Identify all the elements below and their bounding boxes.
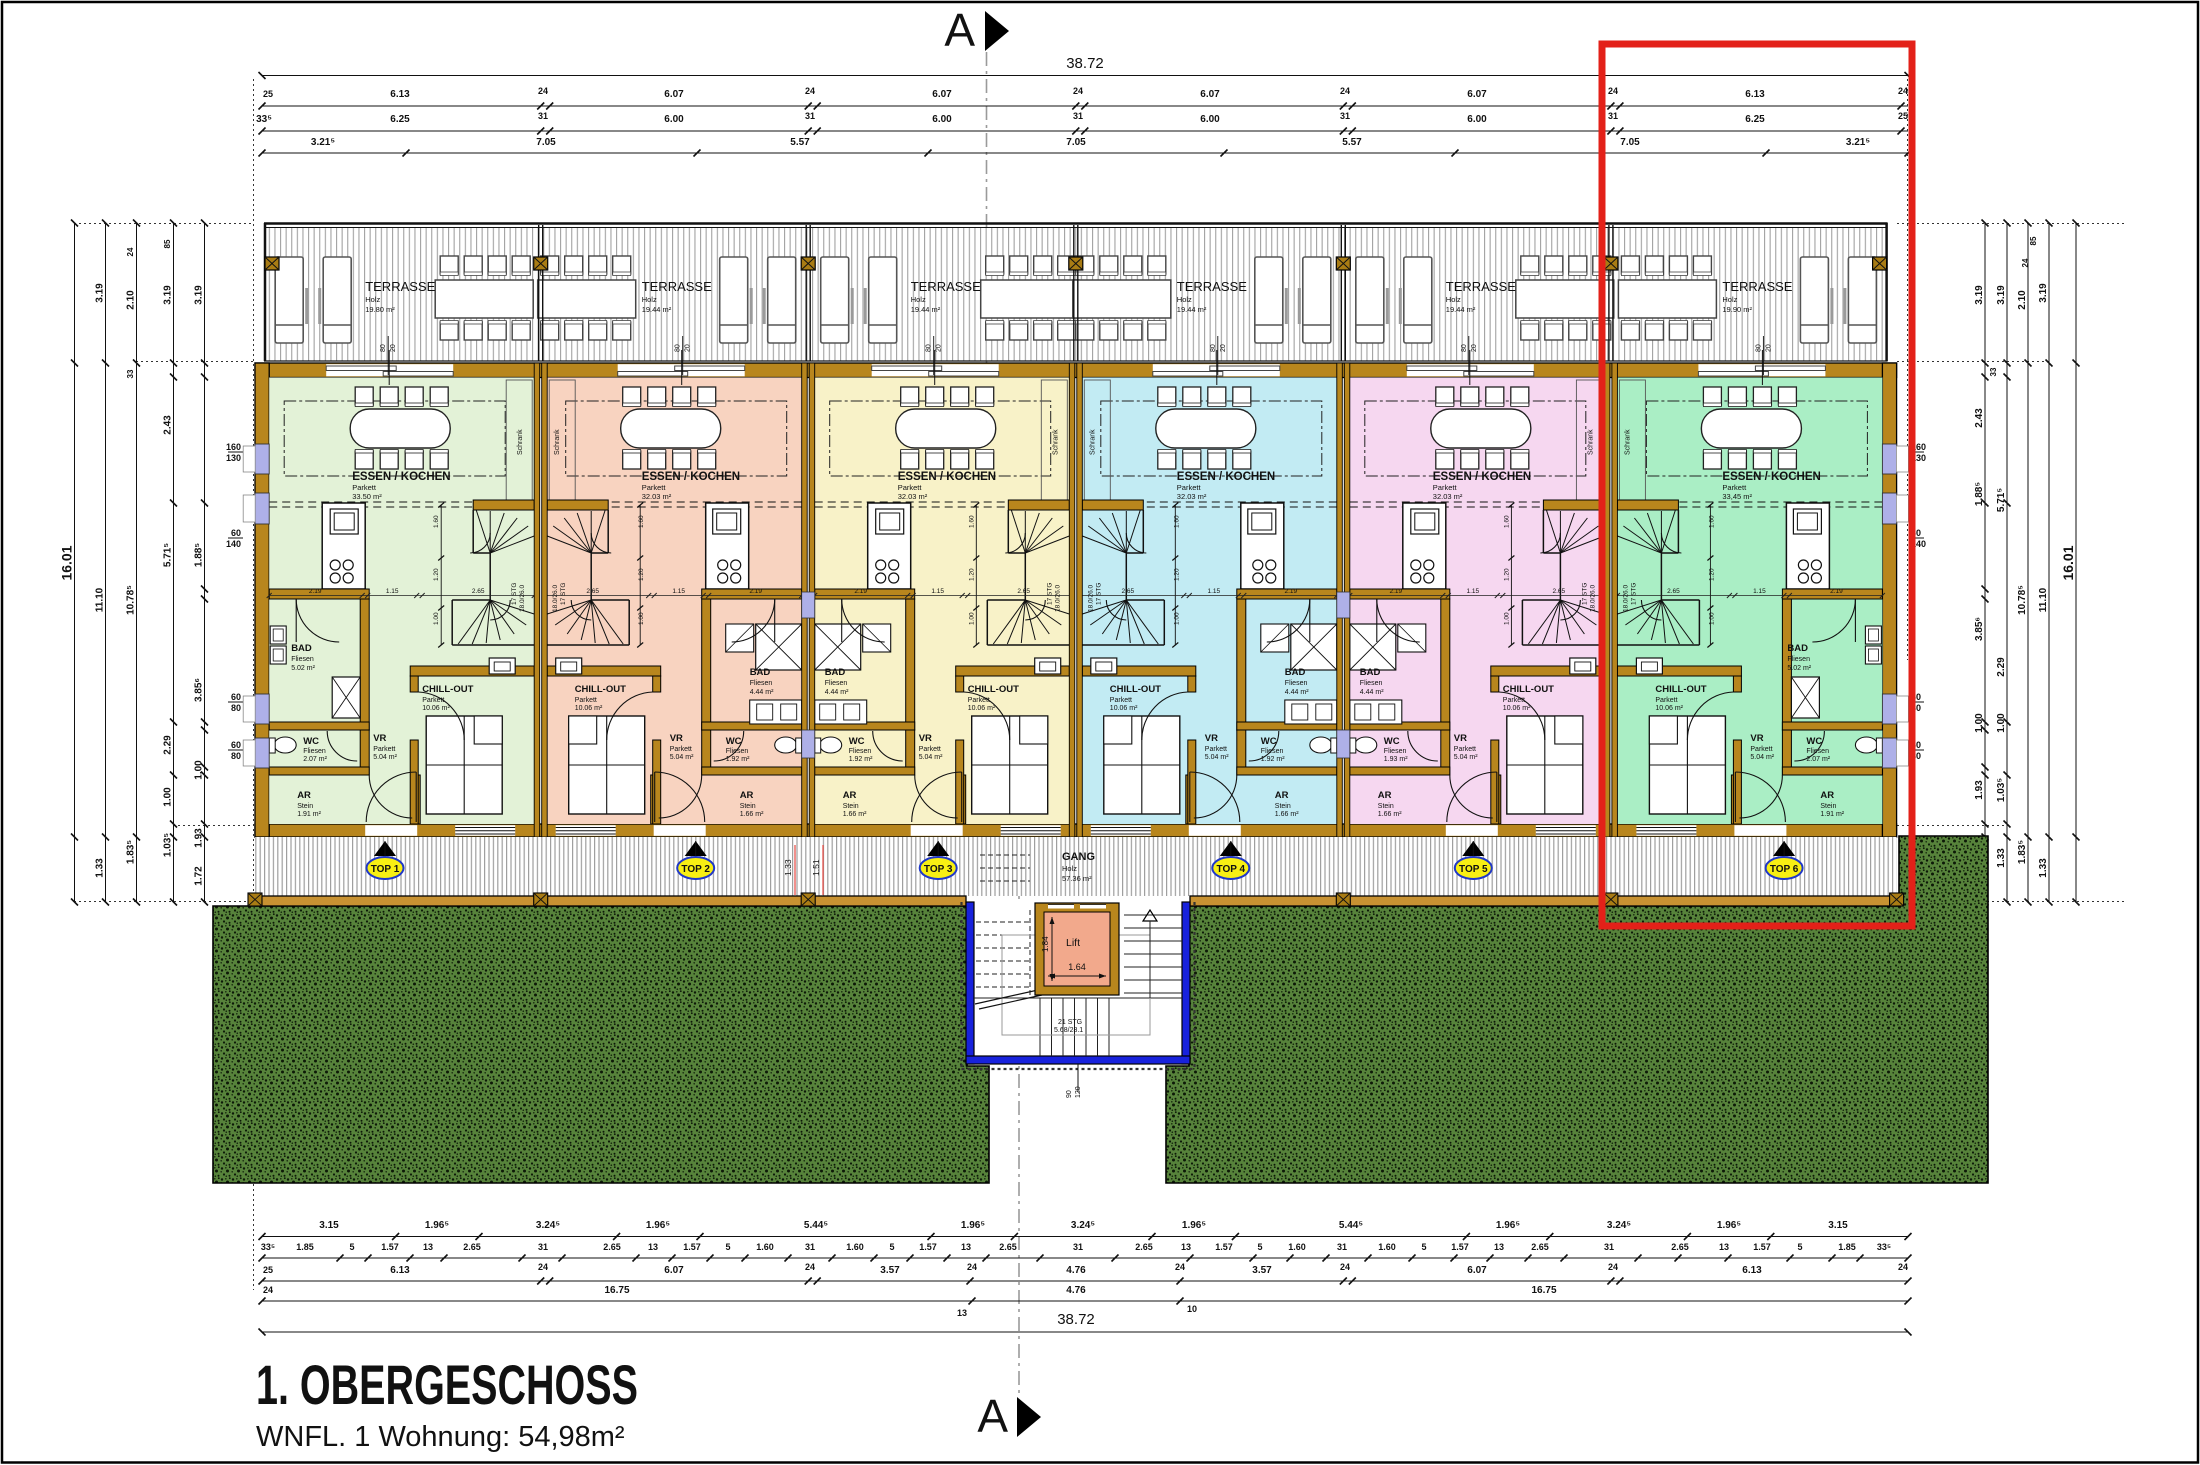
svg-text:5: 5 (1257, 1242, 1262, 1252)
svg-text:33⁵: 33⁵ (1877, 1242, 1891, 1252)
svg-text:ESSEN / KOCHEN: ESSEN / KOCHEN (352, 471, 450, 483)
svg-text:2.10: 2.10 (2017, 290, 2028, 310)
svg-text:1.60: 1.60 (1173, 515, 1180, 528)
svg-text:3.19: 3.19 (1996, 285, 2007, 305)
svg-text:4.76: 4.76 (1066, 1285, 1086, 1296)
svg-text:2.65: 2.65 (1135, 1242, 1153, 1252)
svg-text:80: 80 (675, 344, 682, 352)
svg-text:2.29: 2.29 (1996, 657, 2007, 677)
svg-text:2.29: 2.29 (163, 735, 174, 755)
svg-text:2.65: 2.65 (1017, 588, 1030, 595)
svg-text:3.57: 3.57 (880, 1265, 900, 1276)
svg-text:AR: AR (843, 790, 857, 801)
svg-text:38.72: 38.72 (1066, 55, 1104, 72)
svg-text:5: 5 (725, 1242, 730, 1252)
svg-text:Stein: Stein (297, 803, 313, 810)
svg-text:140: 140 (226, 539, 241, 549)
svg-text:TERRASSE: TERRASSE (1722, 279, 1792, 294)
svg-text:16.75: 16.75 (1531, 1285, 1556, 1296)
svg-text:6.07: 6.07 (932, 89, 952, 100)
svg-text:1.84: 1.84 (1041, 936, 1050, 952)
svg-text:Parkett: Parkett (373, 746, 395, 753)
svg-text:17 STG: 17 STG (1046, 583, 1053, 605)
svg-text:10: 10 (1187, 1304, 1197, 1314)
svg-text:Lift: Lift (1066, 937, 1080, 949)
svg-text:80: 80 (380, 344, 387, 352)
svg-text:TERRASSE: TERRASSE (911, 279, 981, 294)
svg-text:6.13: 6.13 (1742, 1265, 1762, 1276)
svg-text:4.76: 4.76 (1066, 1265, 1086, 1276)
svg-text:Parkett: Parkett (1503, 697, 1525, 704)
svg-text:WC: WC (726, 736, 742, 747)
svg-text:13: 13 (1181, 1242, 1191, 1252)
svg-text:24: 24 (1175, 1262, 1185, 1272)
svg-text:Holz: Holz (1177, 295, 1192, 304)
svg-text:16.75: 16.75 (604, 1285, 629, 1296)
svg-text:1.15: 1.15 (386, 588, 399, 595)
svg-text:32.03 m²: 32.03 m² (1433, 492, 1463, 501)
svg-text:20: 20 (1471, 344, 1478, 352)
svg-text:1.72: 1.72 (194, 866, 205, 886)
svg-text:TERRASSE: TERRASSE (1177, 279, 1247, 294)
svg-text:2.65: 2.65 (586, 588, 599, 595)
svg-text:AR: AR (1820, 790, 1834, 801)
svg-text:10.06 m²: 10.06 m² (1503, 705, 1531, 712)
svg-text:60: 60 (231, 528, 241, 538)
svg-text:1.15: 1.15 (1207, 588, 1220, 595)
svg-text:BAD: BAD (750, 667, 771, 678)
svg-text:24: 24 (263, 1285, 273, 1295)
svg-text:Parkett: Parkett (1110, 697, 1132, 704)
svg-text:6.13: 6.13 (1745, 89, 1765, 100)
svg-text:VR: VR (1205, 733, 1218, 744)
svg-text:19.44 m²: 19.44 m² (911, 305, 941, 314)
svg-text:2.65: 2.65 (1667, 588, 1680, 595)
svg-text:1.20: 1.20 (638, 568, 645, 581)
svg-text:ESSEN / KOCHEN: ESSEN / KOCHEN (642, 471, 740, 483)
svg-text:3.19: 3.19 (194, 285, 205, 305)
svg-text:3.24⁵: 3.24⁵ (1607, 1220, 1631, 1231)
svg-text:Parkett: Parkett (919, 746, 941, 753)
svg-text:TOP 1: TOP 1 (371, 864, 400, 875)
svg-text:CHILL-OUT: CHILL-OUT (1110, 684, 1161, 695)
svg-text:6.07: 6.07 (664, 89, 684, 100)
svg-text:AR: AR (1378, 790, 1392, 801)
svg-text:2.19: 2.19 (854, 588, 867, 595)
svg-text:1.93: 1.93 (194, 828, 205, 848)
svg-text:6.07: 6.07 (1467, 1265, 1487, 1276)
svg-text:25: 25 (263, 1265, 273, 1275)
svg-text:2.65: 2.65 (1531, 1242, 1549, 1252)
svg-text:20: 20 (1220, 344, 1227, 352)
svg-text:24: 24 (2021, 258, 2030, 267)
svg-text:1.20: 1.20 (1708, 568, 1715, 581)
svg-text:24: 24 (126, 247, 135, 256)
svg-text:20: 20 (685, 344, 692, 352)
svg-text:24: 24 (1898, 1262, 1908, 1272)
svg-text:Fliesen: Fliesen (849, 748, 872, 755)
svg-text:1.57: 1.57 (381, 1242, 399, 1252)
svg-text:21 STG: 21 STG (1058, 1019, 1082, 1026)
svg-text:AR: AR (297, 790, 311, 801)
svg-text:6.00: 6.00 (664, 114, 684, 125)
svg-text:VR: VR (1454, 733, 1467, 744)
svg-text:Holz: Holz (1722, 295, 1737, 304)
svg-text:5: 5 (1797, 1242, 1802, 1252)
svg-text:Schrank: Schrank (1089, 429, 1096, 455)
svg-text:31: 31 (805, 1242, 815, 1252)
svg-text:1.93: 1.93 (1974, 780, 1985, 800)
svg-text:Parkett: Parkett (422, 697, 444, 704)
svg-text:1.91 m²: 1.91 m² (297, 811, 321, 818)
svg-text:10.06 m²: 10.06 m² (1655, 705, 1683, 712)
svg-text:6.07: 6.07 (1200, 89, 1220, 100)
svg-text:Parkett: Parkett (1205, 746, 1227, 753)
svg-text:1.60: 1.60 (756, 1242, 774, 1252)
svg-text:24: 24 (538, 86, 548, 96)
svg-text:VR: VR (1750, 733, 1763, 744)
svg-text:6.00: 6.00 (932, 114, 952, 125)
svg-text:1.83⁵: 1.83⁵ (126, 840, 137, 864)
svg-text:90: 90 (1066, 1090, 1073, 1098)
svg-text:1.66 m²: 1.66 m² (1378, 811, 1402, 818)
svg-text:20: 20 (936, 344, 943, 352)
svg-text:4.44 m²: 4.44 m² (1285, 689, 1309, 696)
svg-text:Holz: Holz (365, 295, 380, 304)
svg-text:2.19: 2.19 (1284, 588, 1297, 595)
svg-text:33⁵: 33⁵ (256, 114, 272, 125)
svg-text:18.0/26.0: 18.0/26.0 (1054, 585, 1061, 612)
svg-text:1.92 m²: 1.92 m² (849, 756, 873, 763)
svg-text:1.64: 1.64 (1068, 962, 1086, 972)
svg-text:2.19: 2.19 (1389, 588, 1402, 595)
svg-text:1.96⁵: 1.96⁵ (1182, 1220, 1206, 1231)
svg-text:2.65: 2.65 (999, 1242, 1017, 1252)
svg-text:31: 31 (1604, 1242, 1614, 1252)
svg-text:2.65: 2.65 (1121, 588, 1134, 595)
svg-text:1.96⁵: 1.96⁵ (646, 1220, 670, 1231)
svg-text:Parkett: Parkett (1433, 483, 1458, 492)
svg-text:2.65: 2.65 (603, 1242, 621, 1252)
svg-text:24: 24 (967, 1262, 977, 1272)
svg-text:Stein: Stein (1820, 803, 1836, 810)
svg-text:2.43: 2.43 (1974, 408, 1985, 428)
svg-text:3.15: 3.15 (1828, 1220, 1848, 1231)
svg-text:11.10: 11.10 (95, 587, 106, 612)
svg-text:24: 24 (805, 1262, 815, 1272)
svg-text:25: 25 (1898, 111, 1908, 121)
svg-text:1.60: 1.60 (968, 515, 975, 528)
svg-text:80: 80 (1461, 344, 1468, 352)
svg-text:Holz: Holz (1446, 295, 1461, 304)
svg-text:Schrank: Schrank (1624, 429, 1631, 455)
svg-text:Stein: Stein (843, 803, 859, 810)
svg-text:Holz: Holz (642, 295, 657, 304)
svg-text:Parkett: Parkett (1454, 746, 1476, 753)
svg-text:Parkett: Parkett (898, 483, 923, 492)
svg-text:5.02 m²: 5.02 m² (1787, 665, 1811, 672)
svg-text:Holz: Holz (1062, 864, 1077, 873)
svg-text:1.00: 1.00 (968, 612, 975, 625)
svg-text:32.03 m²: 32.03 m² (898, 492, 928, 501)
svg-text:1.57: 1.57 (683, 1242, 701, 1252)
svg-text:Parkett: Parkett (670, 746, 692, 753)
svg-text:38.72: 38.72 (1057, 1311, 1095, 1328)
svg-text:WC: WC (1384, 736, 1400, 747)
svg-text:31: 31 (1340, 111, 1350, 121)
svg-text:ESSEN / KOCHEN: ESSEN / KOCHEN (1433, 471, 1531, 483)
svg-text:33.50 m²: 33.50 m² (352, 492, 382, 501)
svg-text:60: 60 (231, 692, 241, 702)
svg-text:5.04 m²: 5.04 m² (670, 754, 694, 761)
svg-text:1.15: 1.15 (931, 588, 944, 595)
svg-text:33: 33 (1989, 367, 1998, 376)
svg-text:1.57: 1.57 (1215, 1242, 1233, 1252)
svg-text:16.01: 16.01 (2060, 545, 2076, 580)
svg-text:13: 13 (648, 1242, 658, 1252)
svg-text:5.68/28.1: 5.68/28.1 (1054, 1027, 1083, 1034)
svg-text:TOP 4: TOP 4 (1217, 864, 1246, 875)
svg-text:1.00: 1.00 (1974, 713, 1985, 733)
svg-text:5.04 m²: 5.04 m² (1750, 754, 1774, 761)
svg-text:WNFL. 1 Wohnung: 54,98m²: WNFL. 1 Wohnung: 54,98m² (256, 1421, 625, 1453)
svg-text:1.00: 1.00 (1996, 713, 2007, 733)
svg-text:TOP 5: TOP 5 (1459, 864, 1488, 875)
svg-text:1.57: 1.57 (919, 1242, 937, 1252)
svg-text:Fliesen: Fliesen (1384, 748, 1407, 755)
svg-text:17 STG: 17 STG (1581, 583, 1588, 605)
svg-text:20: 20 (390, 344, 397, 352)
svg-text:5.71⁵: 5.71⁵ (1996, 488, 2007, 512)
svg-text:BAD: BAD (1787, 643, 1808, 654)
svg-text:10.06 m²: 10.06 m² (422, 705, 450, 712)
svg-text:1. OBERGESCHOSS: 1. OBERGESCHOSS (256, 1353, 638, 1416)
svg-text:33⁵: 33⁵ (261, 1242, 275, 1252)
svg-text:3.24⁵: 3.24⁵ (536, 1220, 560, 1231)
svg-text:3.19: 3.19 (1974, 285, 1985, 305)
svg-text:32.03 m²: 32.03 m² (642, 492, 672, 501)
svg-text:160: 160 (226, 442, 241, 452)
svg-text:31: 31 (1073, 111, 1083, 121)
svg-text:1.60: 1.60 (638, 515, 645, 528)
svg-text:1.00: 1.00 (433, 612, 440, 625)
svg-text:6.07: 6.07 (1467, 89, 1487, 100)
svg-text:33: 33 (126, 369, 135, 378)
svg-text:1.60: 1.60 (1378, 1242, 1396, 1252)
svg-text:17 STG: 17 STG (1095, 583, 1102, 605)
svg-text:1.03⁵: 1.03⁵ (1996, 778, 2007, 802)
svg-text:Fliesen: Fliesen (291, 656, 314, 663)
svg-text:AR: AR (740, 790, 754, 801)
svg-text:5.44⁵: 5.44⁵ (804, 1220, 828, 1231)
svg-text:19.44 m²: 19.44 m² (1177, 305, 1207, 314)
svg-text:17 STG: 17 STG (1630, 583, 1637, 605)
svg-text:1.00: 1.00 (163, 787, 174, 807)
svg-text:6.13: 6.13 (390, 1265, 410, 1276)
svg-text:13: 13 (1494, 1242, 1504, 1252)
svg-text:3.85⁶: 3.85⁶ (194, 678, 205, 702)
svg-text:1.96⁵: 1.96⁵ (1717, 1220, 1741, 1231)
svg-text:60: 60 (231, 740, 241, 750)
svg-text:7.05: 7.05 (1066, 137, 1086, 148)
svg-text:24: 24 (805, 86, 815, 96)
svg-text:16.01: 16.01 (59, 545, 75, 580)
svg-text:17 STG: 17 STG (560, 583, 567, 605)
svg-text:WC: WC (849, 736, 865, 747)
svg-text:19.80 m²: 19.80 m² (365, 305, 395, 314)
svg-text:19.90 m²: 19.90 m² (1722, 305, 1752, 314)
svg-text:1.96⁵: 1.96⁵ (1496, 1220, 1520, 1231)
svg-text:BAD: BAD (1360, 667, 1381, 678)
svg-text:25: 25 (263, 89, 273, 99)
svg-text:80: 80 (231, 751, 241, 761)
svg-text:Schrank: Schrank (1052, 429, 1059, 455)
svg-text:5: 5 (889, 1242, 894, 1252)
svg-text:1.57: 1.57 (1451, 1242, 1469, 1252)
svg-text:Parkett: Parkett (1177, 483, 1202, 492)
svg-text:5.57: 5.57 (790, 137, 810, 148)
svg-text:6.07: 6.07 (664, 1265, 684, 1276)
svg-text:1.00: 1.00 (1503, 612, 1510, 625)
svg-text:18.0/26.0: 18.0/26.0 (519, 585, 526, 612)
svg-text:10.78⁵: 10.78⁵ (126, 585, 137, 615)
svg-text:5.04 m²: 5.04 m² (919, 754, 943, 761)
svg-text:1.51: 1.51 (811, 859, 821, 876)
svg-text:Parkett: Parkett (1750, 746, 1772, 753)
svg-text:4.44 m²: 4.44 m² (825, 689, 849, 696)
svg-text:1.66 m²: 1.66 m² (740, 811, 764, 818)
svg-text:1.85: 1.85 (296, 1242, 314, 1252)
svg-text:Stein: Stein (1378, 803, 1394, 810)
svg-text:5.04 m²: 5.04 m² (373, 754, 397, 761)
svg-text:Holz: Holz (911, 295, 926, 304)
svg-text:2.43: 2.43 (163, 415, 174, 435)
svg-text:ESSEN / KOCHEN: ESSEN / KOCHEN (1177, 471, 1275, 483)
svg-text:Fliesen: Fliesen (1787, 656, 1810, 663)
svg-text:1.00: 1.00 (194, 760, 205, 780)
svg-text:2.10: 2.10 (126, 290, 137, 310)
svg-text:AR: AR (1275, 790, 1289, 801)
svg-text:6.25: 6.25 (1745, 114, 1765, 125)
svg-text:2.19: 2.19 (309, 588, 322, 595)
svg-text:5: 5 (1421, 1242, 1426, 1252)
svg-text:Fliesen: Fliesen (1360, 680, 1383, 687)
svg-text:120: 120 (1075, 1086, 1082, 1098)
svg-text:6.25: 6.25 (390, 114, 410, 125)
svg-text:24: 24 (1898, 86, 1908, 96)
svg-text:6.13: 6.13 (390, 89, 410, 100)
svg-text:TERRASSE: TERRASSE (642, 279, 712, 294)
svg-text:13: 13 (423, 1242, 433, 1252)
svg-text:31: 31 (805, 111, 815, 121)
svg-text:BAD: BAD (291, 643, 312, 654)
svg-text:WC: WC (1806, 736, 1822, 747)
svg-text:130: 130 (226, 453, 241, 463)
svg-text:18.0/26.0: 18.0/26.0 (552, 585, 559, 612)
svg-text:Fliesen: Fliesen (303, 748, 326, 755)
svg-text:Parkett: Parkett (968, 697, 990, 704)
svg-text:31: 31 (1337, 1242, 1347, 1252)
svg-text:1.91 m²: 1.91 m² (1820, 811, 1844, 818)
svg-text:TOP 6: TOP 6 (1770, 864, 1799, 875)
svg-text:Fliesen: Fliesen (750, 680, 773, 687)
svg-text:10.06 m²: 10.06 m² (968, 705, 996, 712)
svg-text:1.96⁵: 1.96⁵ (961, 1220, 985, 1231)
svg-text:4.44 m²: 4.44 m² (750, 689, 774, 696)
svg-text:18.0/26.0: 18.0/26.0 (1589, 585, 1596, 612)
svg-text:TERRASSE: TERRASSE (365, 279, 435, 294)
svg-text:1.20: 1.20 (1503, 568, 1510, 581)
svg-text:BAD: BAD (825, 667, 846, 678)
svg-text:85: 85 (2029, 236, 2038, 245)
svg-text:2.65: 2.65 (1671, 1242, 1689, 1252)
svg-text:1.00: 1.00 (1708, 612, 1715, 625)
svg-text:10.06 m²: 10.06 m² (1110, 705, 1138, 712)
svg-text:1.60: 1.60 (846, 1242, 864, 1252)
svg-text:10.78⁵: 10.78⁵ (2017, 585, 2028, 615)
svg-text:1.20: 1.20 (1173, 568, 1180, 581)
svg-text:2.65: 2.65 (1552, 588, 1565, 595)
svg-text:24: 24 (1340, 86, 1350, 96)
svg-text:18.0/26.0: 18.0/26.0 (1087, 585, 1094, 612)
svg-text:BAD: BAD (1285, 667, 1306, 678)
svg-text:57.36 m²: 57.36 m² (1062, 874, 1092, 883)
svg-text:1.85: 1.85 (1838, 1242, 1856, 1252)
svg-text:5.04 m²: 5.04 m² (1205, 754, 1229, 761)
svg-text:5.02 m²: 5.02 m² (291, 665, 315, 672)
svg-text:85: 85 (163, 239, 172, 248)
svg-text:Schrank: Schrank (517, 429, 524, 455)
svg-text:18.0/26.0: 18.0/26.0 (1622, 585, 1629, 612)
svg-text:Stein: Stein (740, 803, 756, 810)
svg-text:Parkett: Parkett (642, 483, 667, 492)
svg-text:CHILL-OUT: CHILL-OUT (575, 684, 626, 695)
svg-text:3.21⁵: 3.21⁵ (311, 137, 335, 148)
svg-text:13: 13 (957, 1308, 967, 1318)
svg-text:1.33: 1.33 (1996, 848, 2007, 868)
svg-text:2.19: 2.19 (749, 588, 762, 595)
svg-text:80: 80 (926, 344, 933, 352)
svg-text:3.85⁶: 3.85⁶ (1974, 617, 1985, 641)
svg-text:1.60: 1.60 (1708, 515, 1715, 528)
svg-text:1.93 m²: 1.93 m² (1384, 756, 1408, 763)
svg-text:ESSEN / KOCHEN: ESSEN / KOCHEN (1722, 471, 1820, 483)
svg-text:1.15: 1.15 (1753, 588, 1766, 595)
svg-text:20: 20 (1765, 344, 1772, 352)
svg-text:VR: VR (919, 733, 932, 744)
svg-text:Parkett: Parkett (352, 483, 377, 492)
svg-text:3.19: 3.19 (95, 283, 106, 303)
svg-text:1.03⁵: 1.03⁵ (163, 833, 174, 857)
svg-text:TOP 2: TOP 2 (681, 864, 710, 875)
svg-text:Fliesen: Fliesen (1285, 680, 1308, 687)
svg-text:5.71⁵: 5.71⁵ (163, 543, 174, 567)
svg-text:7.05: 7.05 (1620, 137, 1640, 148)
svg-text:24: 24 (1608, 86, 1618, 96)
svg-text:13: 13 (961, 1242, 971, 1252)
svg-text:5.57: 5.57 (1342, 137, 1362, 148)
svg-text:80: 80 (231, 703, 241, 713)
svg-text:1.60: 1.60 (433, 515, 440, 528)
svg-text:1.33: 1.33 (2038, 858, 2049, 878)
svg-text:Parkett: Parkett (1722, 483, 1747, 492)
svg-text:1.20: 1.20 (433, 568, 440, 581)
svg-text:Fliesen: Fliesen (825, 680, 848, 687)
svg-text:TERRASSE: TERRASSE (1446, 279, 1516, 294)
svg-text:24: 24 (1340, 1262, 1350, 1272)
svg-text:7.05: 7.05 (536, 137, 556, 148)
svg-text:1.60: 1.60 (1503, 515, 1510, 528)
